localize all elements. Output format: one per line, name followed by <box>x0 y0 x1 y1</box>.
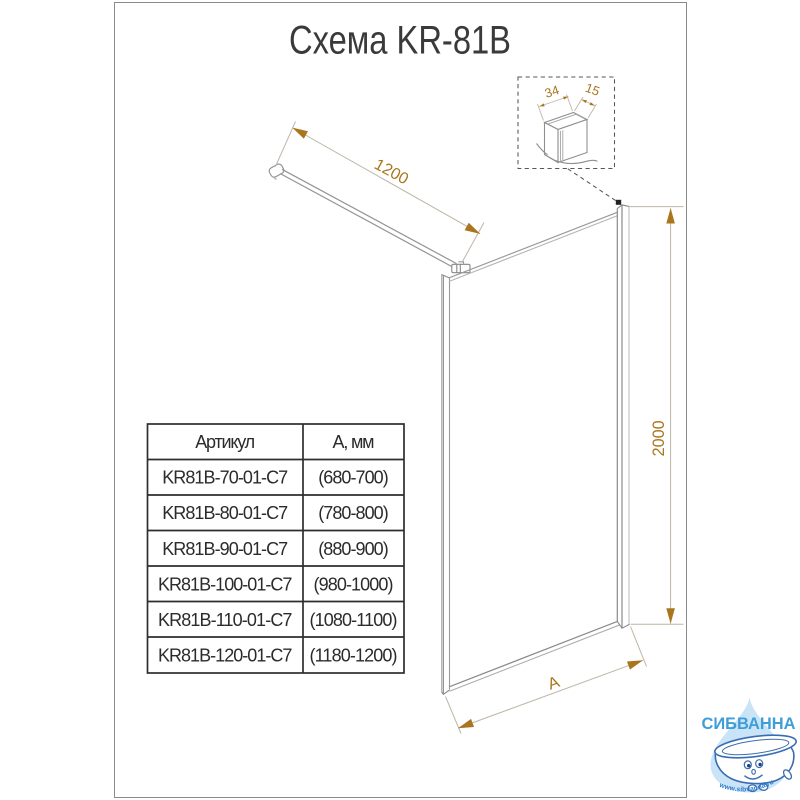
svg-text:СИБВАННА: СИБВАННА <box>702 714 796 733</box>
